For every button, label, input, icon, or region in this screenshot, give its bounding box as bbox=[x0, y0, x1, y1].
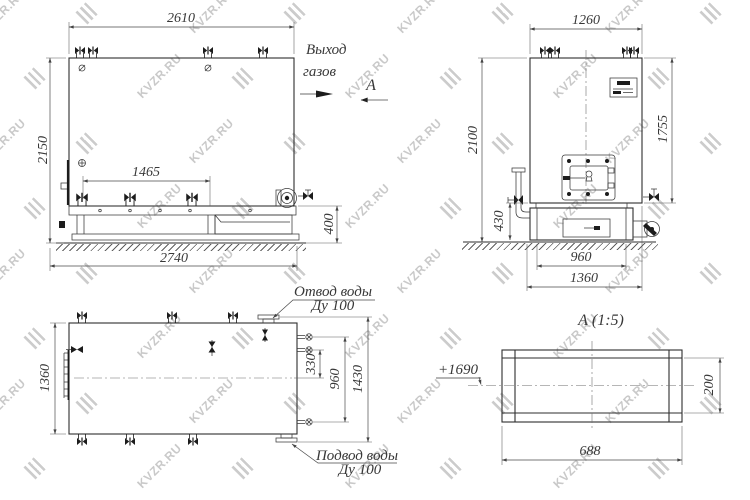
plan-valve-symbol bbox=[167, 312, 177, 324]
detail-elevation: +1690 bbox=[428, 362, 488, 378]
front-dim-inner: 1465 bbox=[116, 165, 176, 181]
base-box bbox=[215, 215, 292, 234]
plan-dim-flange-span: 1430 bbox=[351, 349, 367, 409]
plan-valve-symbol bbox=[188, 434, 198, 446]
header-valve-symbol bbox=[124, 193, 136, 206]
front-dim-width-bottom: 2740 bbox=[144, 251, 204, 267]
water-pipe bbox=[508, 168, 530, 218]
safety-valve-symbol bbox=[75, 47, 85, 59]
safety-valve-symbol bbox=[88, 47, 98, 59]
plan-valve-symbol bbox=[77, 312, 87, 324]
furnace-door bbox=[563, 219, 610, 237]
boiler-body-front bbox=[69, 58, 294, 206]
safety-valve-symbol bbox=[203, 47, 213, 59]
plan-valve-symbol bbox=[228, 312, 238, 324]
water-outlet-size: Ду 100 bbox=[288, 298, 378, 314]
inspection-door bbox=[562, 155, 615, 200]
front-dim-height-left: 2150 bbox=[36, 120, 52, 180]
inner-valve-symbol bbox=[209, 342, 216, 353]
fitting-cross-icon bbox=[79, 160, 86, 167]
header-valve-symbol bbox=[186, 193, 198, 206]
header-valve-symbol bbox=[76, 193, 88, 206]
boiler-drawing-canvas: KVZR.RUKVZR.RUKVZR.RUKVZR.RUKVZR.RUKVZR.… bbox=[0, 0, 750, 500]
drawing-linework bbox=[0, 0, 750, 500]
front-dim-height-right: 400 bbox=[322, 194, 338, 254]
water-inlet-size: Ду 100 bbox=[315, 462, 405, 478]
support-posts bbox=[77, 215, 215, 234]
plan-valve-symbol bbox=[77, 434, 87, 446]
nameplate bbox=[610, 78, 637, 97]
plan-view bbox=[50, 300, 397, 463]
side-dim-height-left: 2100 bbox=[466, 110, 482, 170]
inner-valve-symbol bbox=[262, 330, 268, 341]
plan-dim-stub-span: 960 bbox=[328, 349, 344, 409]
detail-title: А (1:5) bbox=[551, 313, 651, 329]
water-inlet-flange bbox=[276, 434, 297, 442]
furnace-base bbox=[530, 208, 633, 240]
safety-valve-symbol bbox=[258, 47, 268, 59]
lower-header bbox=[69, 206, 296, 215]
plan-valve-symbol bbox=[125, 434, 135, 446]
front-dim-width-top: 2610 bbox=[151, 11, 211, 27]
side-dim-base-outer: 1360 bbox=[554, 271, 614, 287]
safety-valve-symbol bbox=[550, 47, 560, 59]
inner-valve-symbol bbox=[71, 346, 83, 353]
plan-dim-height-left: 1360 bbox=[38, 348, 54, 408]
hatch-mark-icon bbox=[79, 65, 211, 71]
base-rail bbox=[72, 234, 299, 240]
water-outlet-flange bbox=[258, 315, 279, 323]
gas-outlet-label-line1: Выход bbox=[306, 42, 376, 58]
plan-dim-stub-offset: 330 bbox=[304, 334, 320, 394]
safety-valve-symbol bbox=[540, 47, 550, 59]
detail-dim-width: 688 bbox=[560, 444, 620, 460]
side-dim-base-height: 430 bbox=[492, 191, 508, 251]
side-dim-base-inner: 960 bbox=[551, 250, 611, 266]
section-label: А bbox=[356, 78, 386, 94]
blower-fan bbox=[633, 221, 660, 237]
detail-dim-height: 200 bbox=[702, 355, 718, 415]
safety-valve-symbol bbox=[629, 47, 639, 59]
side-valve bbox=[643, 189, 659, 201]
side-dim-height-right: 1755 bbox=[656, 99, 672, 159]
side-dim-width-top: 1260 bbox=[556, 13, 616, 29]
